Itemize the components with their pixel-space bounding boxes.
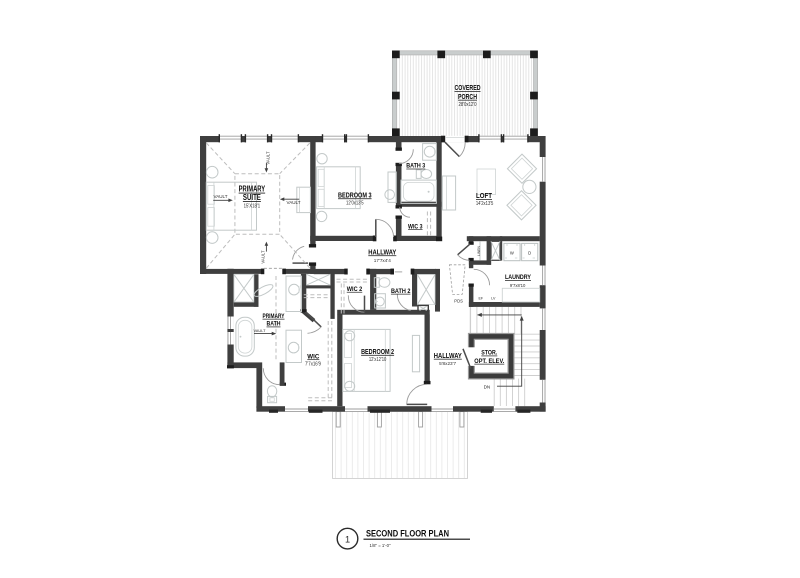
svg-text:PDS: PDS: [454, 299, 463, 304]
svg-text:LAUNDRY: LAUNDRY: [505, 274, 531, 281]
svg-text:5'8x23'7: 5'8x23'7: [439, 361, 456, 367]
svg-text:EF: EF: [479, 296, 484, 300]
svg-text:SUITE: SUITE: [243, 193, 261, 202]
svg-text:7'7x16'9: 7'7x16'9: [305, 362, 321, 368]
svg-text:12'x12'10: 12'x12'10: [369, 357, 387, 363]
svg-text:WIC: WIC: [307, 353, 319, 360]
svg-text:VAULT: VAULT: [214, 194, 228, 199]
svg-text:15'X18'1: 15'X18'1: [244, 203, 261, 209]
svg-text:17'7x4'4: 17'7x4'4: [374, 258, 391, 264]
svg-text:LOFT: LOFT: [476, 192, 493, 200]
svg-text:VAULT: VAULT: [265, 151, 270, 165]
svg-text:14'2x13'5: 14'2x13'5: [476, 201, 494, 207]
svg-text:1: 1: [345, 534, 350, 544]
svg-text:VAULT: VAULT: [261, 250, 266, 264]
svg-text:COVERED: COVERED: [455, 85, 481, 92]
svg-text:BEDROOM 2: BEDROOM 2: [361, 347, 394, 356]
svg-text:WIC 2: WIC 2: [347, 286, 363, 293]
svg-text:PORCH: PORCH: [458, 94, 477, 101]
svg-text:1/8" = 1'-0": 1/8" = 1'-0": [370, 543, 391, 549]
svg-text:12'0x13'5: 12'0x13'5: [346, 201, 364, 207]
svg-text:LV: LV: [491, 296, 496, 300]
svg-text:28'0x12'0: 28'0x12'0: [459, 102, 477, 108]
svg-text:SECOND FLOOR PLAN: SECOND FLOOR PLAN: [366, 527, 449, 538]
svg-text:STOR.: STOR.: [481, 350, 497, 357]
svg-text:BATH 2: BATH 2: [391, 288, 411, 295]
svg-text:BATH: BATH: [267, 321, 281, 328]
svg-text:W: W: [510, 250, 514, 255]
svg-text:VAULT: VAULT: [254, 328, 267, 333]
svg-text:VAULT: VAULT: [287, 200, 301, 205]
svg-text:OPT. ELEV.: OPT. ELEV.: [474, 358, 504, 365]
svg-text:LINEN: LINEN: [477, 245, 481, 256]
svg-text:9'7x8'10: 9'7x8'10: [510, 283, 526, 289]
svg-text:DN: DN: [484, 384, 491, 389]
svg-text:BATH 3: BATH 3: [406, 163, 425, 170]
svg-text:HALLWAY: HALLWAY: [434, 353, 462, 360]
svg-text:D: D: [528, 250, 531, 255]
svg-text:PRIMARY: PRIMARY: [263, 313, 285, 320]
svg-text:HALLWAY: HALLWAY: [368, 249, 396, 256]
svg-text:BEDROOM 3: BEDROOM 3: [338, 190, 372, 199]
svg-text:WIC 3: WIC 3: [408, 224, 423, 230]
